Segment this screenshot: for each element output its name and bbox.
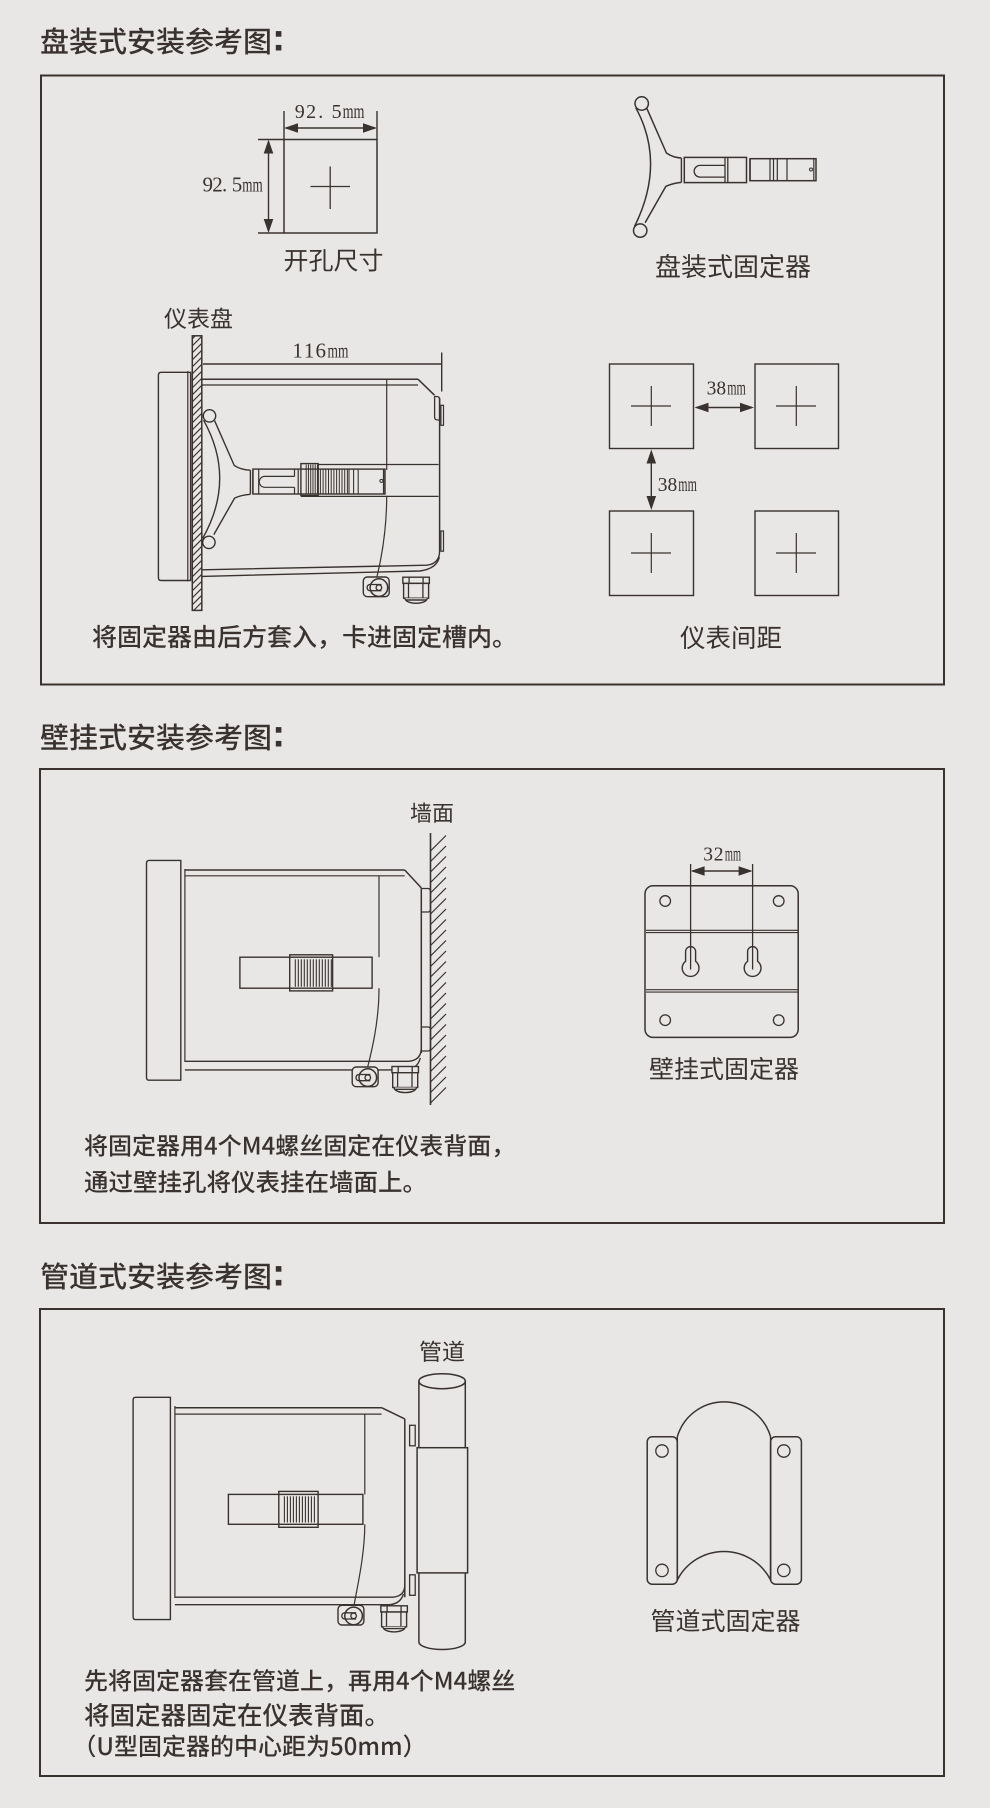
svg-text:32: 32 <box>703 845 723 866</box>
svg-text:mm: mm <box>725 845 741 866</box>
svg-text:mm: mm <box>242 173 262 197</box>
svg-text:116: 116 <box>292 339 326 363</box>
svg-text:38: 38 <box>658 475 678 496</box>
svg-text:mm: mm <box>727 379 746 400</box>
svg-text:92.5: 92.5 <box>203 173 243 197</box>
svg-text:mm: mm <box>328 339 349 363</box>
svg-text:38: 38 <box>707 379 727 400</box>
svg-text:mm: mm <box>343 101 365 123</box>
svg-text:mm: mm <box>678 475 697 496</box>
svg-text:92.5: 92.5 <box>295 101 342 123</box>
